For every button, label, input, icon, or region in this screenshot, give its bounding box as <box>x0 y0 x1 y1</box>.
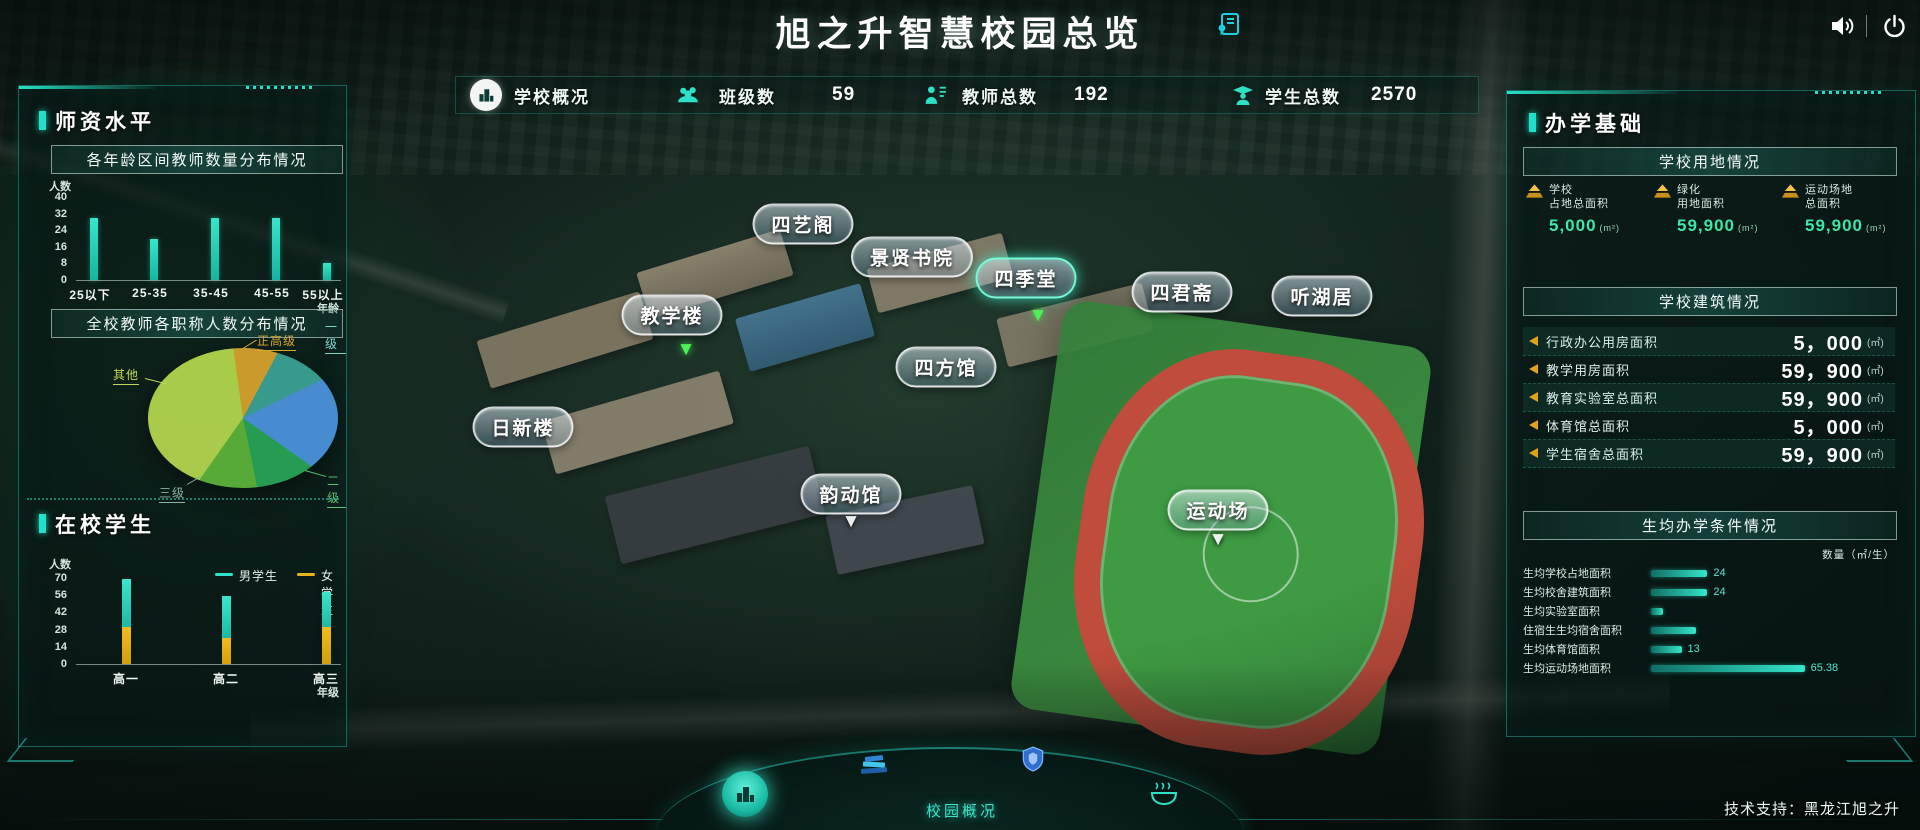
map-pin-arrow-icon: ▼ <box>677 339 696 361</box>
bar-25-35 <box>150 239 158 281</box>
building-row-value: 59，900 <box>1781 355 1863 384</box>
smart-campus-dashboard: 旭之升智慧校园总览 学校概况 班级数 59 教师总数 192 <box>0 0 1920 830</box>
x-label: 25以下 <box>60 286 120 303</box>
class-count-value: 59 <box>832 84 855 106</box>
per-student-row: 生均体育馆面积 13 <box>1523 641 1899 657</box>
nav-canteen-bowl-icon[interactable] <box>1148 780 1180 808</box>
map-label-jingxianshuyuan[interactable]: 景贤书院 <box>851 237 973 278</box>
class-group-icon <box>676 85 701 105</box>
land-value: 59,900 <box>1677 216 1735 235</box>
per-student-bar <box>1651 627 1696 634</box>
student-chart-axis <box>76 664 341 665</box>
y-tick: 24 <box>37 224 67 236</box>
female-segment <box>222 638 231 664</box>
female-segment <box>122 627 131 664</box>
bottom-line-left <box>0 819 665 820</box>
building-row-unit: (㎡) <box>1867 390 1895 405</box>
building-row: 体育馆总面积 5，000 (㎡) <box>1523 411 1895 440</box>
pie-label-qita: 其他 <box>113 366 139 385</box>
bar-45-55 <box>272 218 280 280</box>
building-row-label: 学生宿舍总面积 <box>1546 444 1781 463</box>
per-student-label: 生均校舍建筑面积 <box>1523 584 1651 600</box>
building-row-unit: (㎡) <box>1867 446 1895 461</box>
school-stats-bar: 学校概况 班级数 59 教师总数 192 学生总数 2570 <box>455 76 1479 114</box>
building-row-value: 5，000 <box>1794 327 1864 356</box>
y-tick: 56 <box>37 589 67 601</box>
report-document-icon[interactable] <box>1215 11 1242 38</box>
building-row-value: 5，000 <box>1794 411 1864 440</box>
stack-gao3 <box>322 592 331 664</box>
teacher-icon <box>923 85 948 106</box>
bottom-line-right <box>1232 819 1920 820</box>
nav-security-shield-icon[interactable] <box>1018 745 1048 775</box>
sports-land-icon <box>1781 183 1800 199</box>
per-student-bar <box>1651 665 1805 672</box>
land-subtitle: 学校用地情况 <box>1523 147 1897 176</box>
school-building-icon <box>470 79 502 111</box>
map-label-tinghuju[interactable]: 听湖居 <box>1271 276 1372 317</box>
map-label-siyige[interactable]: 四艺阁 <box>752 204 853 245</box>
gold-arrow-icon <box>1529 420 1538 430</box>
per-student-row: 生均实验室面积 <box>1523 603 1899 619</box>
land-value: 59,900 <box>1805 216 1863 235</box>
pie-label-zhenggaoji: 正高级 <box>257 332 296 351</box>
land-unit: (m²) <box>1600 223 1621 233</box>
land-stat-sports-area: 运动场地总面积 59,900(m²) <box>1781 183 1903 236</box>
title-pie-subtitle: 全校教师各职称人数分布情况 <box>51 309 343 338</box>
nav-active-label[interactable]: 校园概况 <box>926 800 998 821</box>
map-label-sijitang[interactable]: 四季堂 <box>975 258 1076 299</box>
panel-divider <box>27 498 339 500</box>
x-label: 高二 <box>196 670 256 687</box>
section-accent <box>39 514 46 533</box>
student-count-value: 2570 <box>1371 84 1417 106</box>
gold-arrow-icon <box>1529 392 1538 402</box>
land-label-line2: 总面积 <box>1805 197 1853 211</box>
building-row-label: 体育馆总面积 <box>1546 416 1794 435</box>
section-accent <box>39 111 46 130</box>
building-row-value: 59，900 <box>1781 383 1863 412</box>
green-land-icon <box>1653 183 1672 199</box>
land-label-line1: 运动场地 <box>1805 183 1853 197</box>
building-row-unit: (㎡) <box>1867 418 1895 433</box>
bar-25-under <box>90 218 98 280</box>
building-row-unit: (㎡) <box>1867 334 1895 349</box>
per-student-label: 生均学校占地面积 <box>1523 565 1651 581</box>
age-chart-axis <box>76 280 341 281</box>
per-student-bar <box>1651 589 1707 596</box>
pie-label-yiji: 一级 <box>325 318 346 354</box>
land-label-line2: 占地总面积 <box>1549 197 1609 211</box>
basis-section-title: 办学基础 <box>1545 108 1645 138</box>
per-student-row: 生均学校占地面积 24 <box>1523 565 1899 581</box>
student-stacked-chart <box>76 578 341 664</box>
section-accent <box>1529 113 1536 132</box>
student-chart-xlabel: 年级 <box>317 684 339 700</box>
class-count-label: 班级数 <box>719 83 776 108</box>
map-pin-arrow-icon: ▼ <box>842 511 861 533</box>
building-subtitle: 学校建筑情况 <box>1523 287 1897 316</box>
per-student-value: 13 <box>1688 643 1700 655</box>
campus-building-icon <box>734 783 756 805</box>
student-section-title: 在校学生 <box>55 509 155 539</box>
per-student-value: 24 <box>1713 586 1725 598</box>
per-student-bar <box>1651 608 1663 615</box>
age-bar-chart <box>76 197 341 280</box>
land-stat-green-area: 绿化用地面积 59,900(m²) <box>1653 183 1775 236</box>
stack-gao1 <box>122 579 131 664</box>
building-row: 学生宿舍总面积 59，900 (㎡) <box>1523 439 1895 468</box>
map-label-jiaoxuelou[interactable]: 教学楼 <box>621 295 722 336</box>
x-label: 25-35 <box>120 286 180 300</box>
land-unit: (m²) <box>1866 223 1887 233</box>
gold-arrow-icon <box>1529 364 1538 374</box>
school-basis-panel: 办学基础 学校用地情况 学校占地总面积 5,000(m²) 绿化用地面积 59,… <box>1506 90 1916 737</box>
teacher-count-label: 教师总数 <box>962 83 1038 108</box>
y-tick: 70 <box>37 572 67 584</box>
female-segment <box>322 627 331 664</box>
per-student-value: 24 <box>1713 567 1725 579</box>
teacher-count-value: 192 <box>1074 84 1109 106</box>
y-tick: 14 <box>37 641 67 653</box>
per-student-unit-label: 数量（㎡/生） <box>1737 547 1895 562</box>
pie-label-erji: 二级 <box>327 472 346 508</box>
student-icon <box>1231 84 1255 106</box>
map-label-sijunzhai[interactable]: 四君斋 <box>1131 272 1232 313</box>
x-label: 高一 <box>96 670 156 687</box>
per-student-bar <box>1651 570 1707 577</box>
land-icon <box>1525 183 1544 199</box>
legend-male-dash <box>215 573 233 576</box>
building-row-label: 教学用房面积 <box>1546 360 1781 379</box>
bar-35-45 <box>211 218 219 280</box>
student-chart-ylabel: 人数 <box>49 556 71 572</box>
speaker-icon[interactable] <box>1830 14 1856 38</box>
per-student-row: 住宿生生均宿舍面积 <box>1523 622 1899 638</box>
teacher-panel: 师资水平 各年龄区间教师数量分布情况 人数 40 32 24 16 8 0 25… <box>18 85 347 747</box>
teacher-count-item: 教师总数 192 <box>923 77 1109 113</box>
per-student-label: 生均实验室面积 <box>1523 603 1651 619</box>
y-tick: 42 <box>37 606 67 618</box>
x-label: 35-45 <box>181 286 241 300</box>
gold-arrow-icon <box>1529 336 1538 346</box>
map-label-yundongchang[interactable]: 运动场 <box>1167 490 1268 531</box>
teacher-section-title: 师资水平 <box>55 106 155 136</box>
y-tick: 8 <box>37 257 67 269</box>
gold-arrow-icon <box>1529 448 1538 458</box>
header-divider <box>1866 15 1867 37</box>
building-row-unit: (㎡) <box>1867 362 1895 377</box>
teacher-title-pie <box>148 348 338 488</box>
per-student-row: 生均校舍建筑面积 24 <box>1523 584 1899 600</box>
male-segment <box>122 579 131 627</box>
y-tick: 16 <box>37 241 67 253</box>
land-label-line2: 用地面积 <box>1677 197 1725 211</box>
map-pin-arrow-icon: ▼ <box>1209 529 1228 551</box>
power-icon[interactable] <box>1882 14 1907 39</box>
nav-campus-overview-button[interactable] <box>722 771 768 817</box>
building-row: 教学用房面积 59，900 (㎡) <box>1523 355 1895 384</box>
page-title: 旭之升智慧校园总览 <box>0 6 1920 57</box>
age-chart-subtitle: 各年龄区间教师数量分布情况 <box>51 145 343 174</box>
land-unit: (m²) <box>1738 223 1759 233</box>
map-label-yundongguan[interactable]: 韵动馆 <box>800 474 901 515</box>
pie-leader <box>305 470 326 477</box>
y-tick: 0 <box>37 274 67 286</box>
per-student-bar <box>1651 646 1682 653</box>
nav-library-books-icon[interactable] <box>858 750 890 780</box>
building-row: 教育实验室总面积 59，900 (㎡) <box>1523 383 1895 412</box>
y-tick: 32 <box>37 208 67 220</box>
per-student-label: 住宿生生均宿舍面积 <box>1523 622 1651 638</box>
building-row-value: 59，900 <box>1781 439 1863 468</box>
per-student-label: 生均体育馆面积 <box>1523 641 1651 657</box>
y-tick: 28 <box>37 624 67 636</box>
per-student-label: 生均运动场地面积 <box>1523 660 1651 676</box>
bar-55-over <box>323 263 331 280</box>
per-student-subtitle: 生均办学条件情况 <box>1523 511 1897 540</box>
land-label-line1: 学校 <box>1549 183 1609 197</box>
building-row-label: 教育实验室总面积 <box>1546 388 1781 407</box>
map-label-rixinlou[interactable]: 日新楼 <box>472 407 573 448</box>
building-row: 行政办公用房面积 5，000 (㎡) <box>1523 327 1895 356</box>
per-student-row: 生均运动场地面积 65.38 <box>1523 660 1899 676</box>
legend-female-dash <box>297 573 315 576</box>
stack-gao2 <box>222 596 231 664</box>
male-segment <box>222 596 231 638</box>
student-count-label: 学生总数 <box>1265 83 1341 108</box>
school-overview-item: 学校概况 <box>470 77 590 113</box>
class-count-item: 班级数 59 <box>676 77 855 113</box>
map-label-sifangguan[interactable]: 四方馆 <box>895 347 996 388</box>
per-student-value: 65.38 <box>1811 662 1839 674</box>
y-tick: 40 <box>37 191 67 203</box>
map-pin-arrow-icon: ▼ <box>1029 305 1048 327</box>
student-count-item: 学生总数 2570 <box>1231 77 1417 113</box>
building-row-label: 行政办公用房面积 <box>1546 332 1794 351</box>
tech-support-text: 技术支持：黑龙江旭之升 <box>1640 798 1900 819</box>
male-segment <box>322 592 331 628</box>
land-value: 5,000 <box>1549 216 1597 235</box>
pie-label-sanji: 三级 <box>159 484 185 503</box>
school-overview-label: 学校概况 <box>514 83 590 108</box>
y-tick: 0 <box>37 658 67 670</box>
land-label-line1: 绿化 <box>1677 183 1725 197</box>
land-stat-total-area: 学校占地总面积 5,000(m²) <box>1525 183 1647 236</box>
